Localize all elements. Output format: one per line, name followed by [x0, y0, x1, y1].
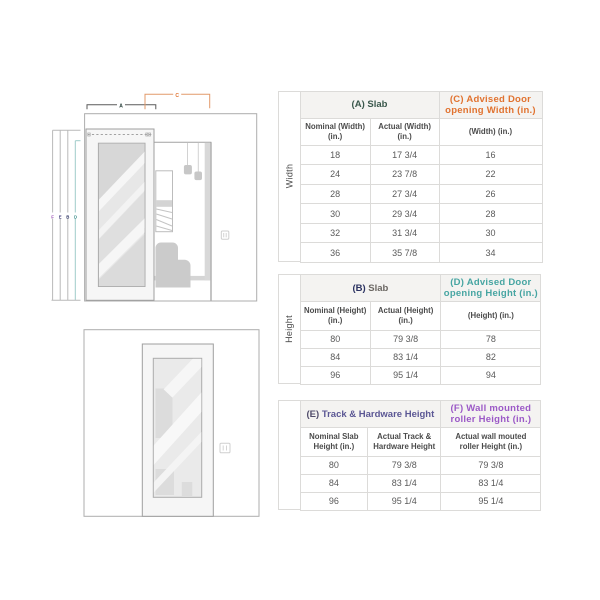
svg-text:E: E	[59, 215, 62, 220]
svg-text:C: C	[175, 93, 179, 99]
svg-text:D: D	[74, 215, 77, 220]
svg-text:B: B	[66, 215, 69, 220]
svg-text:F: F	[51, 215, 54, 220]
svg-text:A: A	[119, 104, 123, 110]
